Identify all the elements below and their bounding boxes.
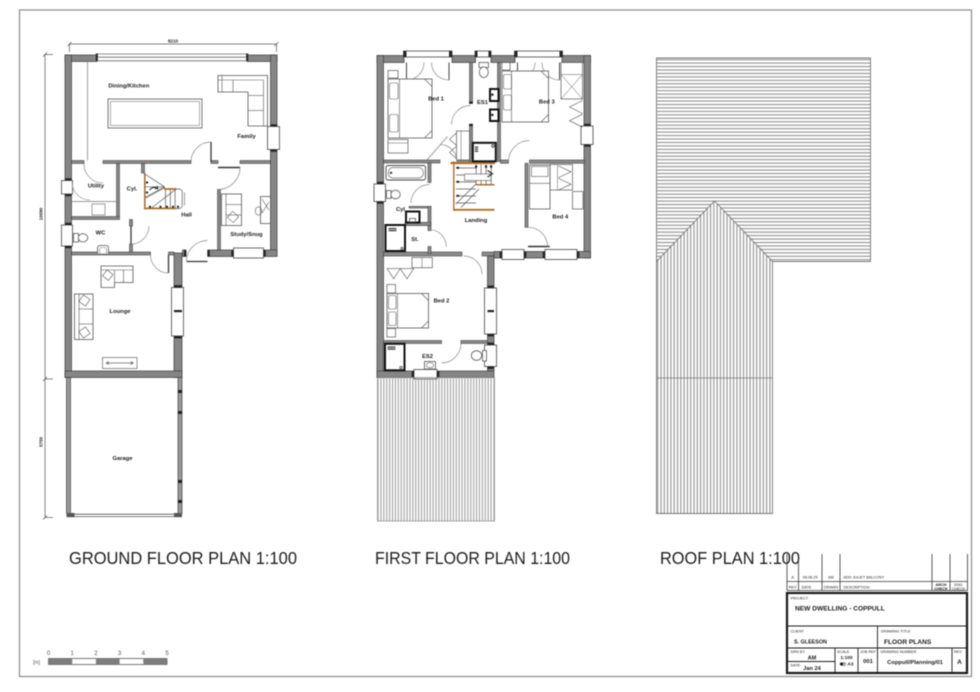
svg-text:PROJECT: PROJECT (791, 597, 809, 601)
svg-text:AM: AM (828, 576, 834, 580)
svg-text:DATE: DATE (802, 586, 812, 590)
svg-text:DRAWN: DRAWN (824, 586, 838, 590)
svg-text:SCALE: SCALE (837, 650, 850, 654)
svg-text:5750: 5750 (39, 436, 44, 447)
svg-text:WC: WC (96, 230, 106, 236)
svg-text:Jan 24: Jan 24 (803, 666, 821, 672)
svg-text:REV: REV (789, 586, 797, 590)
svg-text:ES2: ES2 (422, 354, 433, 360)
svg-text:Bed 3: Bed 3 (539, 99, 556, 105)
svg-text:JOB REF: JOB REF (860, 650, 877, 654)
svg-text:Cyl.: Cyl. (127, 187, 138, 193)
svg-text:Garage: Garage (113, 456, 134, 462)
svg-text:ADD JULIET BALCONY: ADD JULIET BALCONY (844, 576, 885, 580)
svg-text:DRAWING TITLE: DRAWING TITLE (881, 630, 911, 634)
svg-text:Coppull/Planning/01: Coppull/Planning/01 (887, 660, 943, 666)
svg-text:Dining/Kitchen: Dining/Kitchen (108, 84, 149, 90)
svg-text:St.: St. (411, 237, 419, 243)
svg-text:@ A3: @ A3 (842, 662, 854, 668)
svg-text:Hall: Hall (181, 212, 192, 218)
svg-text:REV: REV (954, 650, 962, 654)
svg-text:[m]: [m] (33, 660, 41, 666)
svg-text:10590: 10590 (39, 207, 44, 220)
svg-text:Family: Family (237, 134, 256, 140)
svg-text:FIRST FLOOR PLAN 1:100: FIRST FLOOR PLAN 1:100 (375, 548, 570, 568)
svg-text:8210: 8210 (168, 39, 179, 44)
svg-text:DRAWING NUMBER: DRAWING NUMBER (881, 650, 917, 654)
svg-text:A: A (957, 659, 962, 666)
svg-text:ROOF PLAN 1:100: ROOF PLAN 1:100 (660, 548, 800, 568)
svg-text:CHECK: CHECK (952, 587, 966, 591)
svg-text:DATE: DATE (791, 664, 801, 668)
svg-text:001: 001 (863, 659, 873, 665)
svg-text:CHECK: CHECK (934, 587, 948, 591)
svg-text:Bed 2: Bed 2 (434, 299, 450, 305)
svg-text:Utility: Utility (88, 184, 105, 190)
svg-text:Landing: Landing (465, 218, 488, 224)
svg-text:Bed 4: Bed 4 (552, 214, 569, 220)
svg-text:ES1: ES1 (477, 100, 489, 106)
svg-text:DRN BY: DRN BY (791, 650, 806, 654)
svg-text:Study/Snug: Study/Snug (230, 232, 263, 238)
svg-text:NEW DWELLING - COPPULL: NEW DWELLING - COPPULL (795, 606, 885, 613)
svg-text:DESCRIPTION: DESCRIPTION (844, 586, 870, 590)
svg-text:S. GLEESON: S. GLEESON (794, 640, 827, 646)
svg-text:Cyl: Cyl (396, 207, 405, 213)
svg-text:GROUND FLOOR PLAN 1:100: GROUND FLOOR PLAN 1:100 (69, 548, 297, 568)
svg-text:08.08.25: 08.08.25 (803, 576, 818, 580)
svg-text:1:100: 1:100 (840, 655, 853, 661)
svg-text:Lounge: Lounge (110, 309, 132, 315)
svg-text:Bed 1: Bed 1 (428, 96, 445, 102)
svg-text:CLIENT: CLIENT (791, 630, 805, 634)
svg-text:AM: AM (808, 656, 817, 662)
svg-text:FLOOR PLANS: FLOOR PLANS (884, 639, 932, 646)
svg-text:A: A (791, 576, 794, 580)
